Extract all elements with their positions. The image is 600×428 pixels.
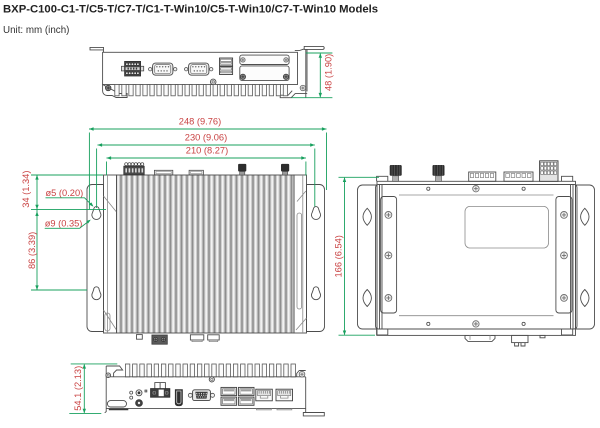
svg-text:230 (9.06): 230 (9.06) — [185, 133, 227, 143]
svg-text:ø5 (0.20): ø5 (0.20) — [46, 188, 84, 198]
svg-text:Unit: mm (inch): Unit: mm (inch) — [3, 25, 69, 36]
svg-text:34 (1.34): 34 (1.34) — [21, 171, 31, 208]
svg-text:54.1 (2.13): 54.1 (2.13) — [73, 366, 83, 411]
svg-text:166 (6.54): 166 (6.54) — [334, 235, 344, 277]
svg-text:86 (3.39): 86 (3.39) — [27, 232, 37, 269]
svg-text:48 (1.90): 48 (1.90) — [324, 54, 334, 91]
svg-text:BXP-C100-C1-T/C5-T/C7-T/C1-T-W: BXP-C100-C1-T/C5-T/C7-T/C1-T-Win10/C5-T-… — [3, 4, 378, 16]
svg-text:ø9 (0.35): ø9 (0.35) — [45, 219, 83, 229]
svg-text:248 (9.76): 248 (9.76) — [179, 117, 221, 127]
svg-text:210 (8.27): 210 (8.27) — [186, 146, 228, 156]
